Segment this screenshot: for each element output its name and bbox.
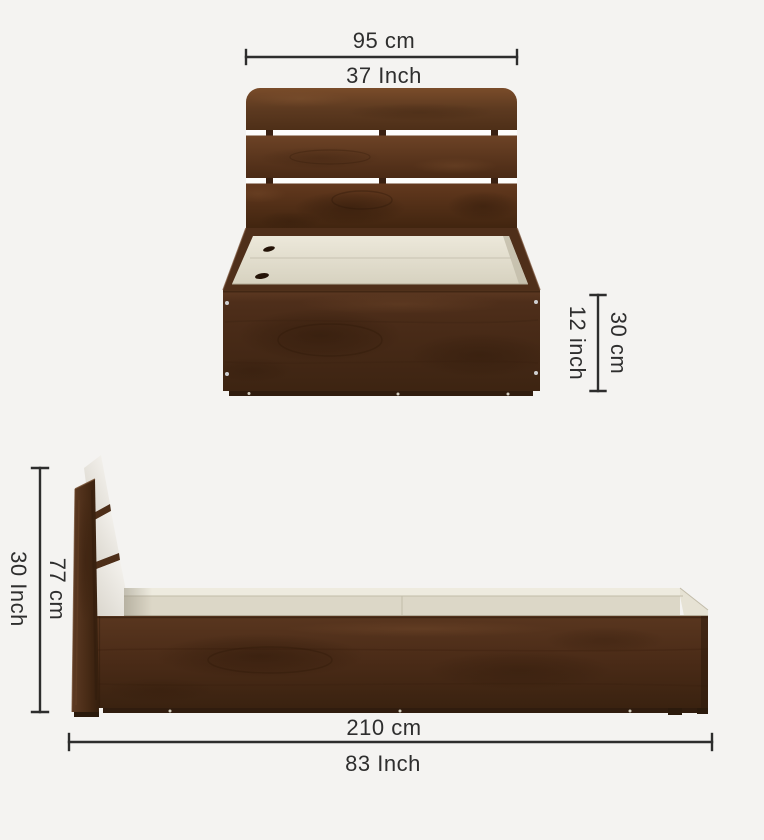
bed-diagram-graphics	[0, 0, 764, 840]
front-frame-height-cm-label: 30 cm	[607, 312, 629, 374]
bed-side-view-illustration	[72, 455, 708, 717]
front-platform-deck	[223, 228, 540, 290]
front-headboard	[230, 88, 519, 231]
screw-dot	[225, 372, 229, 376]
screw-dot	[534, 371, 538, 375]
side-headboard-post	[72, 479, 99, 712]
side-length-cm-label: 210 cm	[346, 717, 421, 739]
front-base-feet	[229, 391, 533, 396]
bed-dimension-diagram: 95 cm 37 Inch 30 cm 12 inch 30 Inch 77 c…	[0, 0, 764, 840]
front-frame-height-inch-label: 12 inch	[566, 306, 588, 380]
front-frame-height-dimension-line	[591, 295, 606, 391]
screw-dot	[225, 301, 229, 305]
bed-front-view-illustration	[212, 88, 550, 396]
side-storage-panel	[97, 616, 708, 708]
side-deck-rail	[124, 588, 708, 616]
side-headboard-height-inch-label: 30 Inch	[7, 551, 29, 627]
front-width-inch-label: 37 Inch	[346, 65, 422, 87]
side-length-inch-label: 83 Inch	[345, 753, 421, 775]
front-storage-box	[212, 290, 550, 391]
screw-dot	[534, 300, 538, 304]
front-width-cm-label: 95 cm	[353, 30, 415, 52]
side-headboard-height-cm-label: 77 cm	[46, 558, 68, 620]
